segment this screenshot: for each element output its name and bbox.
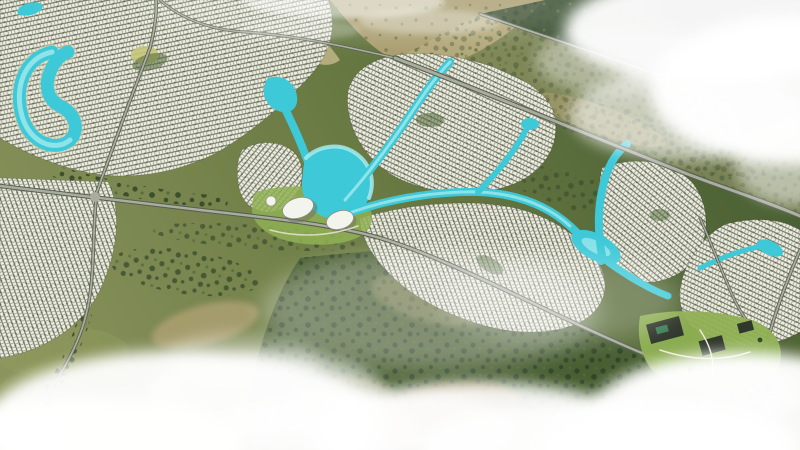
park-c (416, 113, 444, 127)
park-e (650, 209, 670, 221)
road-junction (90, 192, 100, 202)
aerial-scene (0, 0, 800, 450)
aerial-render-image (0, 0, 800, 450)
clubhouse-pavilion (266, 196, 276, 206)
